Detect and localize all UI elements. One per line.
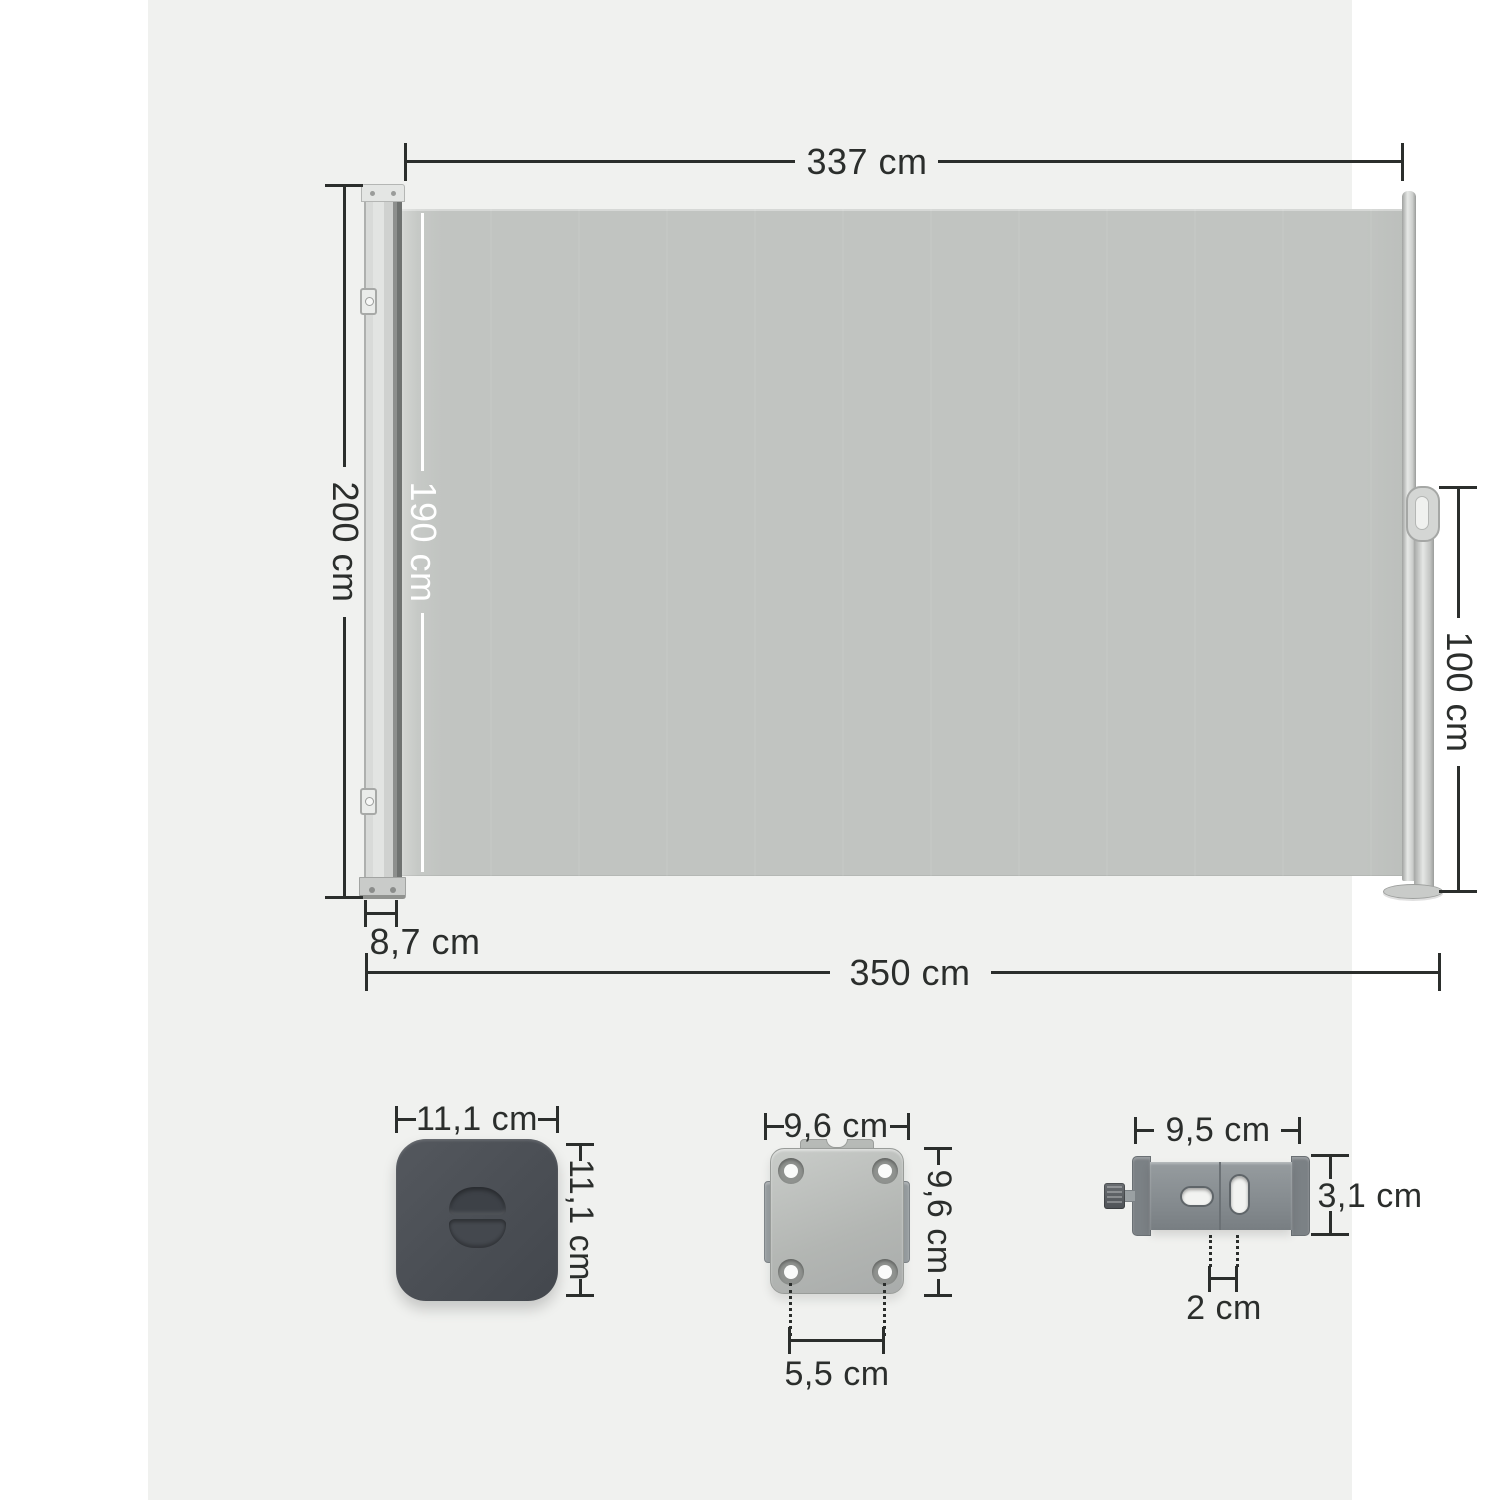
dim-label-plate-height: 9,6 cm [922, 1169, 956, 1274]
bracket-screw-head [1104, 1183, 1125, 1209]
dim-87-line [366, 912, 397, 915]
bracket-spacing-dotted-left [1209, 1235, 1212, 1267]
foot-screw [390, 887, 396, 893]
dim-label-bracket-height: 3,1 cm [1317, 1179, 1422, 1213]
dim-350-line-left [366, 971, 830, 974]
dim-label-bracket-slot-spacing: 2 cm [1186, 1291, 1262, 1325]
dim-337-line-right [938, 160, 1403, 163]
plate-width-right-tick [907, 1113, 910, 1140]
clamp-bracket-seam [1219, 1162, 1221, 1230]
plate-height-bottom-tick [924, 1294, 952, 1297]
dim-100-line-bottom [1457, 766, 1460, 892]
pole-base-foot [1383, 884, 1443, 899]
awning-fabric-texture [402, 209, 1405, 876]
plate-width-left-stem [767, 1125, 784, 1128]
plate-height-top-stem [937, 1150, 940, 1165]
dim-label-pole-height: 100 cm [1441, 631, 1477, 752]
bracket-slot-vertical [1229, 1174, 1250, 1215]
foot-screw [369, 887, 375, 893]
bracket-width-left-stem [1137, 1129, 1154, 1132]
dim-label-plate-width: 9,6 cm [783, 1109, 888, 1143]
cassette-foot [359, 877, 406, 899]
dim-label-bracket-width: 9,5 cm [1165, 1113, 1270, 1147]
bracket-slot-horizontal [1180, 1186, 1214, 1207]
dim-label-plate-hole-spacing: 5,5 cm [784, 1357, 889, 1391]
clamp-bracket-component [1150, 1162, 1292, 1230]
cassette-wall-bracket-top [360, 288, 377, 315]
diagram-canvas: 337 cm 200 cm 190 cm 100 cm 8,7 cm 350 c… [148, 0, 1352, 1500]
cap-width-right-tick [556, 1106, 559, 1133]
dim-200-line-top [343, 186, 346, 467]
plate-screw-hole [778, 1158, 804, 1184]
bracket-spacing-dotted-right [1236, 1235, 1239, 1267]
dim-label-fabric-height: 190 cm [405, 481, 441, 602]
dim-label-cap-height: 11,1 cm [564, 1159, 598, 1281]
plate-screw-hole [872, 1259, 898, 1285]
bracket-screw-shaft [1124, 1190, 1136, 1202]
dim-100-line-top [1457, 488, 1460, 618]
awning-pull-handle [1406, 486, 1440, 542]
cap-height-bottom-stem [579, 1279, 582, 1294]
dim-337-line-left [405, 160, 795, 163]
bracket-height-top-stem [1329, 1157, 1332, 1179]
awning-support-pole [1414, 538, 1434, 888]
dim-label-cap-width: 11,1 cm [416, 1102, 538, 1136]
cap-width-left-stem [398, 1118, 416, 1121]
plate-screw-hole [778, 1259, 804, 1285]
clamp-bracket-flange-right [1291, 1156, 1310, 1236]
dim-350-line-right [991, 971, 1440, 974]
cap-height-bottom-tick [566, 1294, 594, 1297]
dim-190-line-bottom [421, 613, 424, 872]
dim-190-line-top [421, 213, 424, 471]
dim-label-cassette-depth: 8,7 cm [369, 924, 480, 960]
bracket-width-right-stem [1281, 1129, 1298, 1132]
plate-height-bottom-stem [937, 1279, 940, 1294]
cassette-wall-bracket-bottom [360, 788, 377, 815]
plate-width-right-stem [890, 1125, 907, 1128]
cassette-cap-screw [370, 191, 375, 196]
dim-label-fabric-width: 337 cm [806, 144, 927, 180]
bracket-width-right-tick [1298, 1117, 1301, 1144]
cassette-cap-screw [391, 191, 396, 196]
cap-width-right-stem [538, 1118, 556, 1121]
bracket-height-bottom-tick [1311, 1233, 1349, 1236]
bracket-spacing-line [1209, 1277, 1237, 1280]
product-dimension-diagram: 337 cm 200 cm 190 cm 100 cm 8,7 cm 350 c… [0, 0, 1500, 1500]
cassette-top-cap [361, 184, 405, 202]
dim-200-line-bottom [343, 617, 346, 897]
handle-grip-hole [1415, 496, 1429, 530]
dim-label-overall-height: 200 cm [327, 481, 363, 602]
plate-screw-hole [872, 1158, 898, 1184]
bracket-hole [365, 797, 374, 806]
bracket-hole [365, 297, 374, 306]
plate-spacing-line [789, 1339, 885, 1342]
dim-label-overall-width: 350 cm [849, 955, 970, 991]
